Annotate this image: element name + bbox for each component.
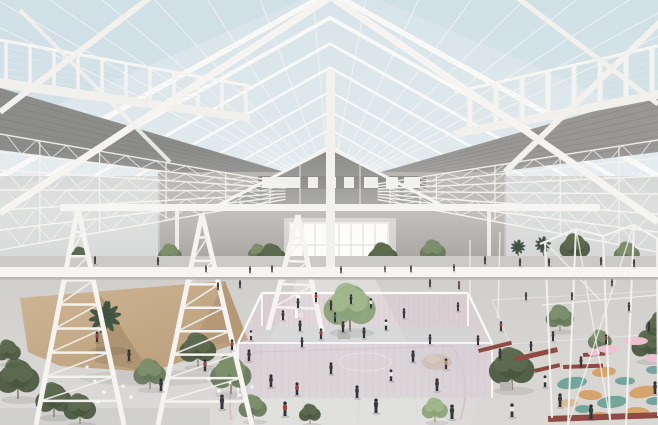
person-shadow [529, 351, 535, 353]
person-head [429, 334, 431, 336]
person-legs [458, 285, 460, 289]
person-legs [301, 343, 303, 348]
light-bulb [103, 391, 106, 394]
person-shadow [402, 318, 408, 320]
person-torso [484, 258, 486, 261]
person-torso [250, 333, 253, 337]
person-torso [374, 402, 378, 407]
tree-foliage [168, 247, 178, 257]
person-legs [282, 316, 284, 321]
person-torso [157, 259, 159, 262]
person-torso [247, 352, 250, 356]
person-head [558, 393, 561, 396]
person-head [269, 374, 272, 377]
person-torso [355, 388, 359, 393]
person-legs [484, 260, 486, 264]
person-legs [363, 333, 365, 338]
person-shadow [296, 308, 302, 310]
person-torso [340, 268, 342, 271]
person-shadow [216, 290, 220, 291]
person-torso [589, 408, 593, 413]
person-head [370, 298, 372, 300]
person-shadow [647, 331, 652, 333]
person-shadow [328, 374, 335, 376]
person-shadow [333, 322, 339, 324]
person-head [589, 404, 593, 408]
person-shadow [551, 341, 557, 343]
light-bulb [122, 385, 125, 388]
tree-shadow [243, 419, 268, 424]
person-torso [530, 344, 533, 348]
person-shadow [428, 287, 432, 288]
person-shadow [524, 300, 528, 301]
play-mat [575, 405, 591, 413]
person-shadow [249, 340, 255, 342]
person-torso [477, 338, 480, 342]
tree-foliage [330, 292, 349, 311]
tree-shadow [329, 328, 375, 338]
person-legs [403, 314, 405, 319]
person-legs [580, 362, 582, 367]
person-torso [271, 267, 273, 270]
person-legs [239, 284, 241, 288]
person-legs [499, 354, 501, 359]
person-head [295, 382, 298, 385]
person-head [204, 359, 207, 362]
person-torso [283, 405, 287, 410]
person-shadow [361, 338, 367, 340]
person-head [435, 378, 438, 381]
tree-foliage [431, 243, 442, 254]
person-head [477, 335, 479, 337]
person-head [605, 334, 607, 336]
planter-pot [500, 382, 512, 391]
person-legs [477, 341, 479, 346]
tree-foliage [494, 355, 511, 372]
light-bulb [86, 366, 89, 369]
mezzanine-rail [0, 267, 658, 280]
person-head [297, 298, 299, 300]
person-legs [600, 261, 602, 265]
tree-foliage [137, 364, 149, 376]
person-legs [205, 269, 206, 272]
person-head [525, 292, 527, 294]
person-legs [385, 325, 387, 330]
person-shadow [340, 332, 346, 334]
person-legs [250, 336, 252, 341]
tree-foliage [425, 402, 435, 412]
person-legs [315, 298, 317, 303]
person-legs [530, 347, 532, 352]
person-torso [334, 315, 337, 319]
person-torso [500, 324, 503, 328]
person-torso [269, 377, 273, 382]
person-legs [552, 337, 554, 342]
tree-foliage [251, 398, 263, 410]
light-bulb [229, 382, 232, 385]
person-head [653, 381, 656, 384]
center-king-post [326, 70, 335, 270]
person-legs [605, 340, 607, 345]
person-torso [295, 385, 299, 390]
person-shadow [483, 264, 487, 265]
person-shadow [281, 320, 287, 322]
architectural-rendering [0, 0, 658, 425]
person-shadow [329, 310, 335, 312]
person-shadow [318, 339, 324, 341]
person-torso [458, 283, 460, 286]
tree-foliage [558, 308, 570, 320]
person-torso [411, 353, 414, 357]
person-shadow [578, 367, 584, 369]
person-legs [519, 262, 521, 266]
person-torso [403, 311, 406, 315]
person-torso [410, 267, 412, 270]
person-head [350, 294, 352, 296]
person-legs [94, 260, 96, 264]
person-head [340, 266, 342, 268]
person-legs [157, 261, 159, 265]
person-head [330, 300, 332, 302]
person-torso [605, 337, 608, 341]
floor-shadow-left [0, 408, 210, 425]
person-legs [429, 283, 431, 287]
person-legs [96, 337, 98, 342]
person-head [453, 264, 455, 266]
rail-shadow [0, 277, 658, 280]
person-torso [315, 295, 318, 299]
person-legs [356, 392, 359, 398]
person-legs [654, 388, 657, 394]
tree-foliage [250, 247, 257, 254]
person-legs [559, 401, 562, 407]
person-shadow [93, 264, 97, 265]
person-torso [525, 294, 527, 297]
person-shadow [542, 387, 549, 389]
person-legs [221, 402, 224, 409]
person-legs [270, 381, 273, 387]
person-legs [330, 306, 332, 311]
tree-foliage [148, 363, 162, 377]
person-head [450, 404, 454, 408]
person-legs [128, 356, 130, 361]
light-bulb [218, 390, 221, 393]
person-legs [249, 270, 250, 273]
person-head [429, 279, 431, 281]
tree-foliage [549, 310, 559, 320]
person-head [249, 266, 251, 268]
person-shadow [453, 271, 457, 272]
person-head [94, 256, 96, 258]
person-legs [590, 412, 593, 419]
person-torso [95, 334, 98, 338]
person-head [484, 256, 486, 258]
person-head [159, 378, 162, 381]
person-head [128, 349, 131, 352]
person-head [231, 339, 234, 342]
light-bulb [97, 401, 100, 404]
person-legs [248, 356, 250, 361]
person-shadow [126, 361, 133, 363]
person-legs [429, 340, 431, 345]
person-head [648, 322, 650, 324]
person-legs [320, 334, 322, 339]
person-head [342, 321, 345, 324]
person-head [500, 321, 502, 323]
person-head [330, 362, 333, 365]
person-torso [429, 281, 431, 284]
person-head [519, 258, 521, 260]
person-head [580, 356, 583, 359]
person-torso [94, 258, 96, 261]
play-mat [615, 377, 635, 385]
person-legs [544, 382, 546, 387]
person-legs [548, 262, 550, 266]
person-shadow [497, 359, 503, 361]
person-shadow [202, 371, 209, 373]
person-shadow [340, 273, 344, 274]
rail-beam [0, 267, 658, 277]
person-legs [457, 307, 459, 311]
person-torso [558, 397, 562, 402]
person-shadow [271, 272, 275, 273]
person-shadow [410, 362, 417, 364]
person-shadow [238, 288, 242, 289]
person-torso [450, 408, 454, 413]
hoop-backboard [295, 309, 298, 318]
person-torso [600, 259, 602, 262]
person-shadow [246, 361, 253, 363]
person-torso [384, 268, 386, 270]
tower-rung [274, 307, 317, 309]
person-torso [429, 337, 432, 341]
person-legs [375, 406, 378, 413]
person-torso [249, 268, 251, 271]
person-torso [220, 398, 224, 403]
person-head [552, 331, 554, 333]
person-torso [510, 407, 514, 412]
person-torso [362, 330, 365, 334]
person-torso [628, 304, 631, 307]
person-legs [611, 283, 612, 286]
person-legs [628, 307, 630, 311]
person-legs [296, 389, 299, 395]
person-legs [330, 369, 332, 374]
light-bulb [251, 386, 254, 389]
person-torso [444, 361, 447, 365]
person-legs [571, 296, 573, 300]
person-torso [297, 301, 300, 305]
person-torso [633, 261, 635, 264]
person-head [403, 308, 405, 310]
light-bulb [239, 394, 242, 397]
person-shadow [384, 272, 387, 273]
person-torso [548, 260, 550, 263]
tree-foliage [1, 366, 17, 382]
tree-foliage [309, 407, 318, 416]
pink-table [624, 337, 648, 345]
tree-foliage [215, 363, 230, 378]
person-legs [384, 269, 385, 272]
person-head [600, 257, 602, 259]
person-legs [410, 269, 411, 272]
person-torso [329, 365, 332, 369]
person-torso [571, 294, 573, 297]
person-head [571, 292, 573, 294]
person-head [205, 265, 207, 267]
person-torso [282, 313, 285, 317]
person-legs [271, 269, 272, 272]
person-legs [204, 366, 206, 371]
person-torso [457, 304, 460, 307]
person-head [548, 258, 550, 260]
person-torso [230, 342, 233, 346]
person-torso [239, 282, 241, 285]
person-head [628, 302, 630, 304]
person-torso [519, 260, 521, 263]
tree-foliage [433, 401, 444, 412]
person-torso [552, 334, 555, 338]
person-head [390, 369, 393, 372]
person-shadow [604, 344, 610, 346]
person-torso [579, 359, 582, 363]
person-shadow [94, 342, 100, 344]
person-legs [299, 326, 301, 331]
person-shadow [369, 308, 375, 310]
tree-foliage [423, 244, 433, 254]
person-head [384, 266, 385, 267]
tree-foliage [302, 408, 310, 416]
person-legs [453, 268, 454, 271]
person-torso [648, 324, 651, 327]
person-head [530, 341, 532, 343]
person-shadow [476, 345, 482, 347]
person-shadow [499, 331, 505, 333]
hall-interior-rendering [0, 0, 658, 425]
person-torso [298, 323, 301, 327]
person-shadow [547, 266, 551, 267]
person-legs [231, 345, 233, 350]
tower-rung [280, 284, 312, 285]
light-bulb [130, 396, 133, 399]
person-torso [611, 281, 613, 284]
person-legs [340, 270, 341, 273]
person-legs [284, 409, 287, 416]
person-torso [319, 331, 322, 335]
person-head [248, 349, 251, 352]
person-shadow [205, 272, 209, 273]
person-torso [543, 378, 546, 382]
person-legs [451, 412, 454, 419]
person-head [499, 348, 502, 351]
person-torso [370, 301, 373, 305]
person-legs [390, 376, 392, 381]
tower-rung [286, 261, 308, 262]
person-head [239, 280, 241, 282]
person-head [301, 337, 303, 339]
person-head [412, 350, 415, 353]
person-head [320, 328, 323, 331]
person-torso [653, 384, 657, 389]
person-torso [498, 351, 501, 355]
person-shadow [297, 331, 303, 333]
person-shadow [156, 265, 160, 266]
person-head [385, 319, 388, 322]
person-legs [500, 327, 502, 332]
person-shadow [570, 300, 574, 301]
person-head [363, 327, 366, 330]
person-torso [127, 352, 130, 356]
person-shadow [410, 272, 414, 273]
person-shadow [349, 304, 355, 306]
person-head [374, 398, 378, 402]
tree-foliage [161, 248, 170, 257]
person-torso [384, 322, 387, 326]
cage-mesh-near [238, 343, 492, 398]
person-head [334, 312, 336, 314]
person-legs [217, 286, 219, 290]
light-bulb [208, 378, 211, 381]
person-legs [511, 411, 514, 417]
person-head [445, 358, 448, 361]
person-legs [445, 364, 447, 369]
person-legs [334, 318, 336, 323]
person-shadow [457, 289, 461, 290]
person-head [544, 375, 547, 378]
person-head [250, 330, 252, 332]
person-legs [633, 263, 635, 267]
person-torso [217, 284, 219, 287]
person-legs [370, 304, 372, 309]
person-torso [301, 340, 304, 344]
tree-foliage [6, 343, 17, 354]
person-head [315, 292, 317, 294]
person-head [96, 331, 99, 334]
person-shadow [300, 347, 306, 349]
person-torso [330, 303, 333, 307]
person-shadow [249, 273, 253, 274]
person-head [458, 281, 460, 283]
person-legs [648, 327, 650, 331]
person-torso [159, 381, 163, 386]
person-legs [297, 304, 299, 309]
person-head [410, 265, 412, 267]
person-shadow [456, 311, 461, 313]
person-head [271, 265, 273, 267]
person-shadow [599, 265, 603, 266]
light-bulb [94, 380, 97, 383]
person-legs [525, 296, 527, 300]
tree-shadow [1, 396, 39, 404]
person-shadow [314, 302, 320, 304]
person-torso [203, 362, 206, 366]
person-shadow [611, 286, 615, 287]
person-head [283, 401, 287, 405]
person-shadow [443, 369, 449, 371]
person-shadow [388, 381, 395, 383]
person-head [355, 385, 358, 388]
person-shadow [632, 267, 636, 268]
person-head [611, 279, 613, 281]
person-legs [412, 357, 414, 362]
person-head [217, 282, 219, 284]
person-head [457, 302, 459, 304]
person-legs [342, 327, 344, 332]
person-shadow [518, 266, 522, 267]
person-shadow [428, 344, 434, 346]
person-torso [205, 267, 207, 270]
person-torso [341, 324, 344, 328]
